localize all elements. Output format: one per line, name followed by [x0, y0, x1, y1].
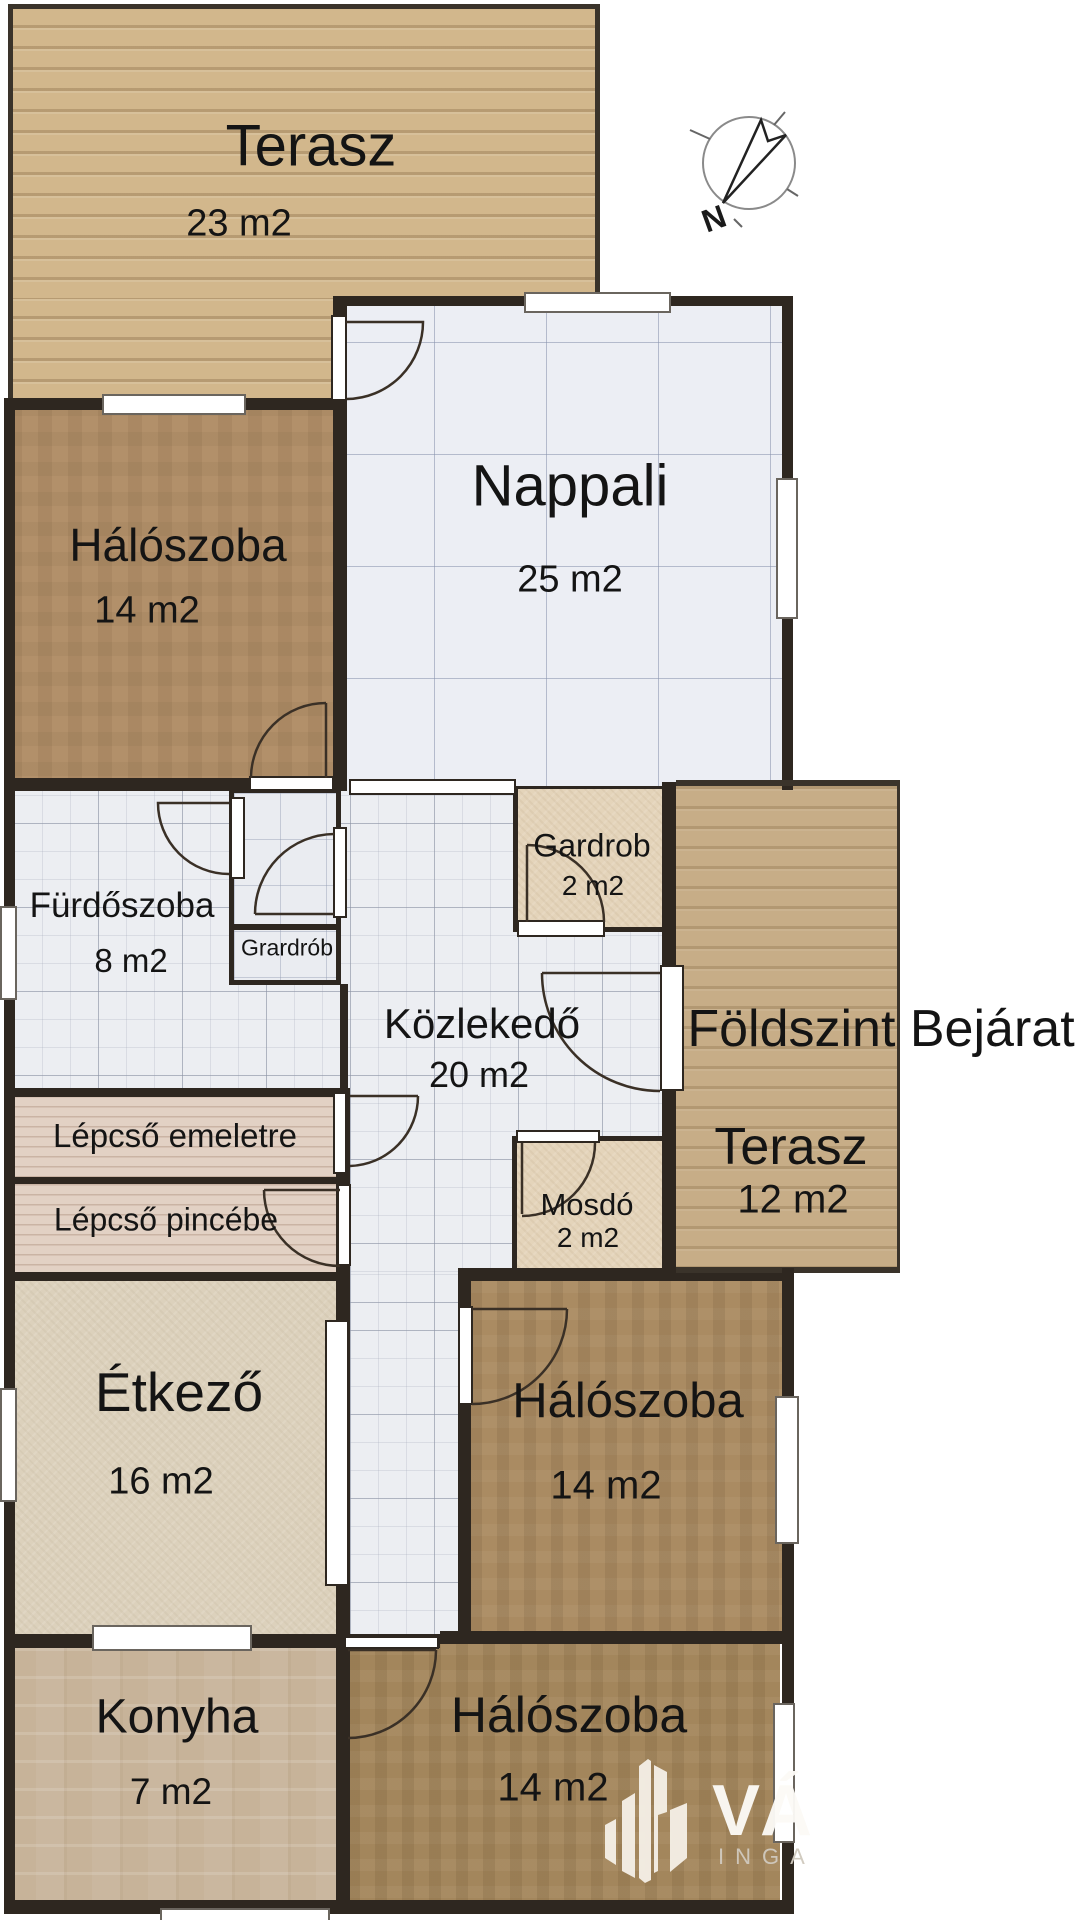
svg-text:INGA: INGA — [718, 1844, 816, 1869]
svg-text:VÁ: VÁ — [712, 1771, 812, 1851]
